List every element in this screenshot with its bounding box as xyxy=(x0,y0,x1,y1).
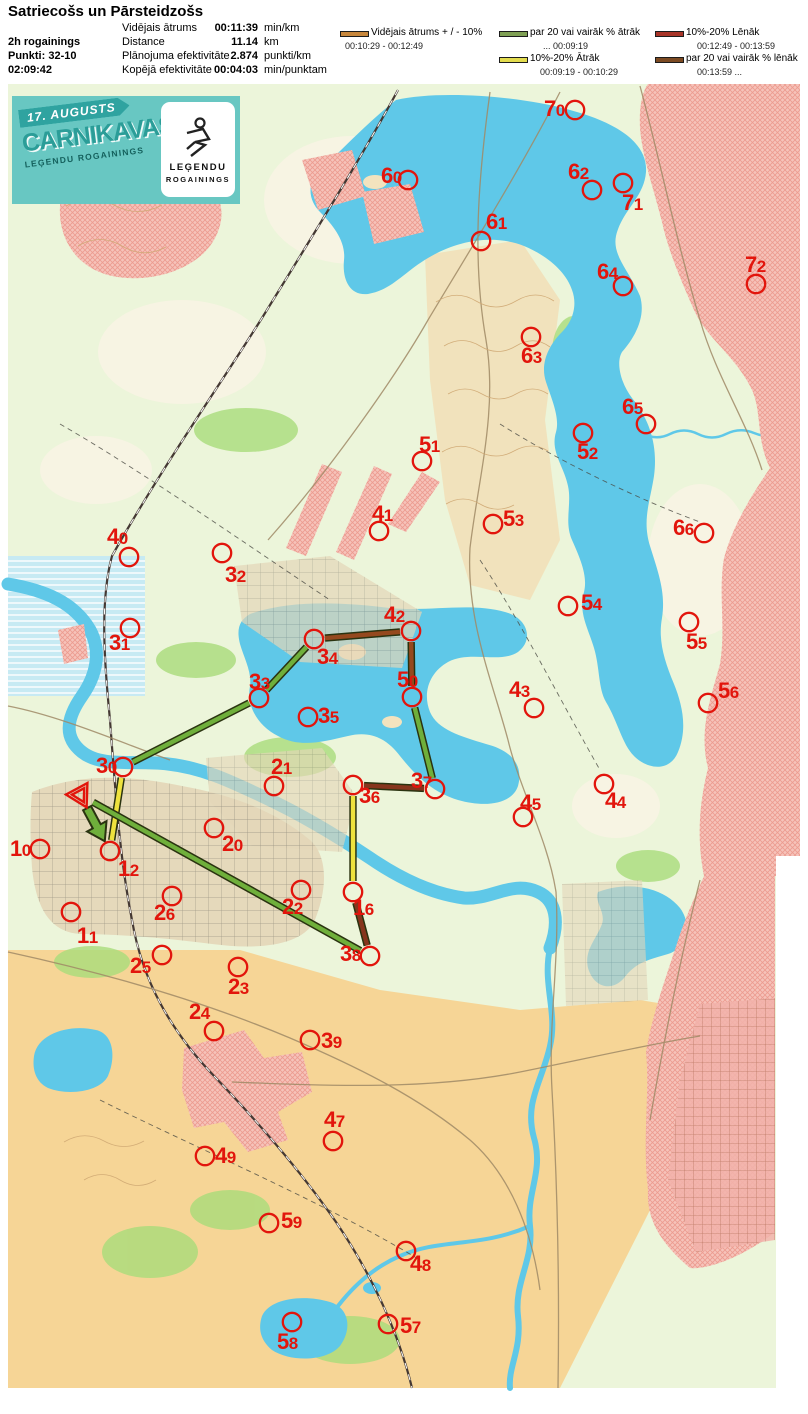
logo-text-line1: LEĢENDU xyxy=(170,162,227,173)
map-background xyxy=(8,84,800,1388)
page: Satriecošs un Pārsteidzošs 2h rogainings… xyxy=(0,0,808,1414)
logo-text-line2: ROGAININGS xyxy=(166,175,230,184)
banner-text-block: 17. AUGUSTS CARNIKAVAS LEĢENDU ROGAINING… xyxy=(18,91,176,169)
map: 7060627161647263655251415340323154665556… xyxy=(0,0,808,1414)
map-area: 7060627161647263655251415340323154665556… xyxy=(0,0,808,1414)
event-banner: 17. AUGUSTS CARNIKAVAS LEĢENDU ROGAINING… xyxy=(12,96,240,204)
legendu-rogainings-logo: LEĢENDU ROGAININGS xyxy=(161,102,235,197)
runner-icon xyxy=(176,116,220,160)
